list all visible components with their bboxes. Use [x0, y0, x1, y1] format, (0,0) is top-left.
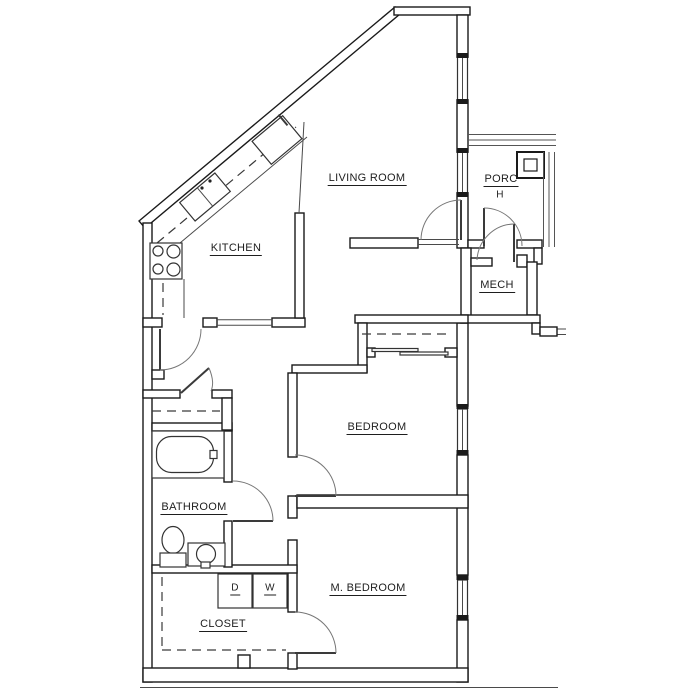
room-label-living-room: LIVING ROOM	[328, 172, 407, 184]
porch-railing-east	[544, 152, 555, 247]
living-room-label-text: LIVING ROOM	[328, 172, 407, 186]
room-label-mech: MECH	[479, 279, 515, 291]
kitchen-label-text: KITCHEN	[210, 242, 262, 256]
master-bedroom-door-swing	[295, 612, 336, 653]
living-room-door-swing	[421, 200, 461, 240]
bathtub-icon	[152, 431, 224, 478]
mech-label-text: MECH	[479, 279, 515, 293]
room-label-master-bedroom: M. BEDROOM	[329, 582, 406, 594]
top-exterior-wall	[394, 7, 470, 15]
bathroom-label-text: BATHROOM	[160, 501, 227, 515]
diagonal-exterior-wall	[139, 7, 400, 228]
bathroom-sink-icon	[188, 543, 225, 568]
room-label-bedroom: BEDROOM	[347, 421, 408, 433]
dryer-label-text: D	[230, 583, 240, 596]
living-room-window-upper	[457, 53, 469, 104]
sliding-closet-door	[372, 349, 418, 352]
kitchen-living-divider	[295, 213, 304, 318]
room-label-bathroom: BATHROOM	[160, 501, 227, 513]
appliance-label-washer: W	[264, 583, 276, 594]
bottom-exterior-wall	[143, 668, 468, 682]
closet-label-text: CLOSET	[199, 618, 247, 632]
living-room-window-lower	[457, 148, 469, 197]
porch-railing-north	[468, 135, 556, 146]
room-label-porch-line2: H	[495, 190, 505, 201]
bedroom-label-text: BEDROOM	[347, 421, 408, 435]
stove-icon	[150, 243, 182, 279]
porch	[468, 135, 556, 248]
bathroom-fixtures	[152, 431, 225, 568]
toilet-icon	[160, 527, 186, 568]
left-exterior-wall	[143, 223, 152, 682]
porch-label-text: PORC	[484, 173, 519, 187]
porch-label-text2: H	[495, 190, 505, 202]
floor-plan-page: LIVING ROOM KITCHEN PORC H MECH BEDROOM …	[0, 0, 697, 697]
kitchen-fixtures	[150, 115, 307, 318]
bathroom-door-swing	[233, 481, 273, 521]
room-label-closet: CLOSET	[199, 618, 247, 630]
hall-closet-door-swing	[181, 368, 213, 393]
bedroom-closet-walls	[355, 315, 468, 372]
porch-entry-door-swing	[484, 208, 522, 246]
kitchen-door-swing	[160, 329, 201, 370]
porch-column-icon	[517, 152, 544, 178]
bedroom-window	[457, 404, 469, 455]
sliding-closet-door	[400, 352, 448, 355]
room-label-kitchen: KITCHEN	[210, 242, 262, 254]
washer-label-text: W	[264, 583, 276, 596]
master-bedroom-label-text: M. BEDROOM	[329, 582, 406, 596]
master-bedroom-window	[457, 575, 469, 620]
bedroom-door-swing	[295, 455, 336, 496]
room-label-porch-line1: PORC	[484, 173, 519, 185]
appliance-label-dryer: D	[230, 583, 240, 594]
